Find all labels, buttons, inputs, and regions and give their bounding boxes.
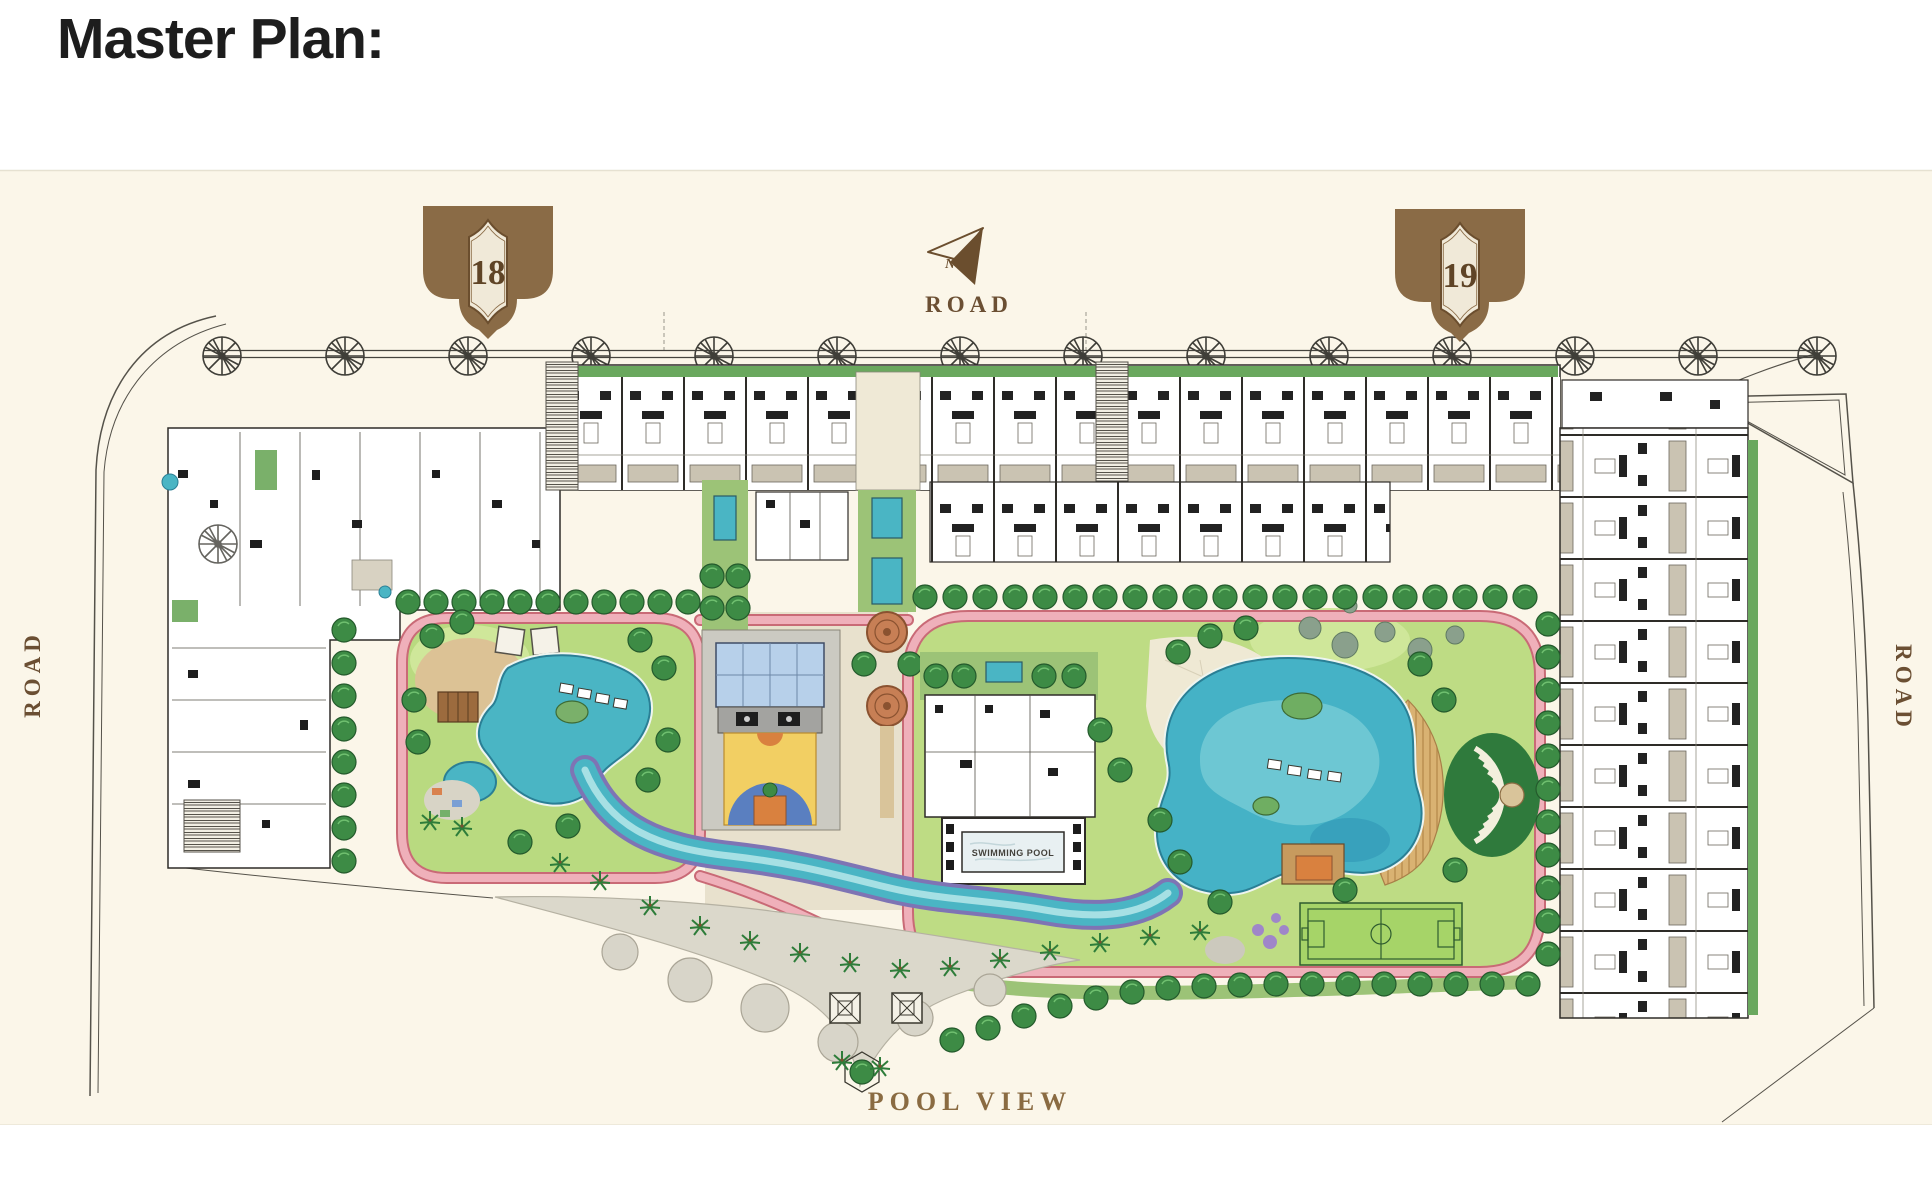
bottom-margin <box>0 1126 1932 1178</box>
amphitheater <box>1444 733 1540 857</box>
entry-drive-west <box>546 362 578 490</box>
checker-paver <box>892 993 922 1023</box>
tower-number-19: 19 <box>1443 256 1478 295</box>
master-plan-canvas: 18 19 N ROAD ROAD ROAD <box>0 0 1932 1178</box>
second-building-row <box>930 482 1390 562</box>
swimming-pool-label: SWIMMING POOL <box>972 848 1055 858</box>
garage-ramp <box>184 800 240 852</box>
pool-view-label: POOL VIEW <box>868 1087 1073 1116</box>
tower-number-18: 18 <box>471 253 506 292</box>
page: Master Plan: <box>0 0 1932 1178</box>
entry-drive-east <box>1096 362 1128 490</box>
north-letter: N <box>944 257 956 272</box>
road-label-right: ROAD <box>1891 644 1916 732</box>
entry-gap <box>856 372 920 490</box>
street-tree-icon <box>203 337 241 375</box>
sunshade <box>531 627 560 656</box>
road-label-top: ROAD <box>925 292 1013 317</box>
round-table-icon <box>199 525 237 563</box>
football-field <box>1300 903 1462 965</box>
swimming-pool-hall: SWIMMING POOL <box>942 818 1085 884</box>
road-label-left: ROAD <box>20 630 45 718</box>
sports-court-complex <box>702 630 840 830</box>
sunshade <box>495 626 524 655</box>
checker-paver <box>830 993 860 1023</box>
